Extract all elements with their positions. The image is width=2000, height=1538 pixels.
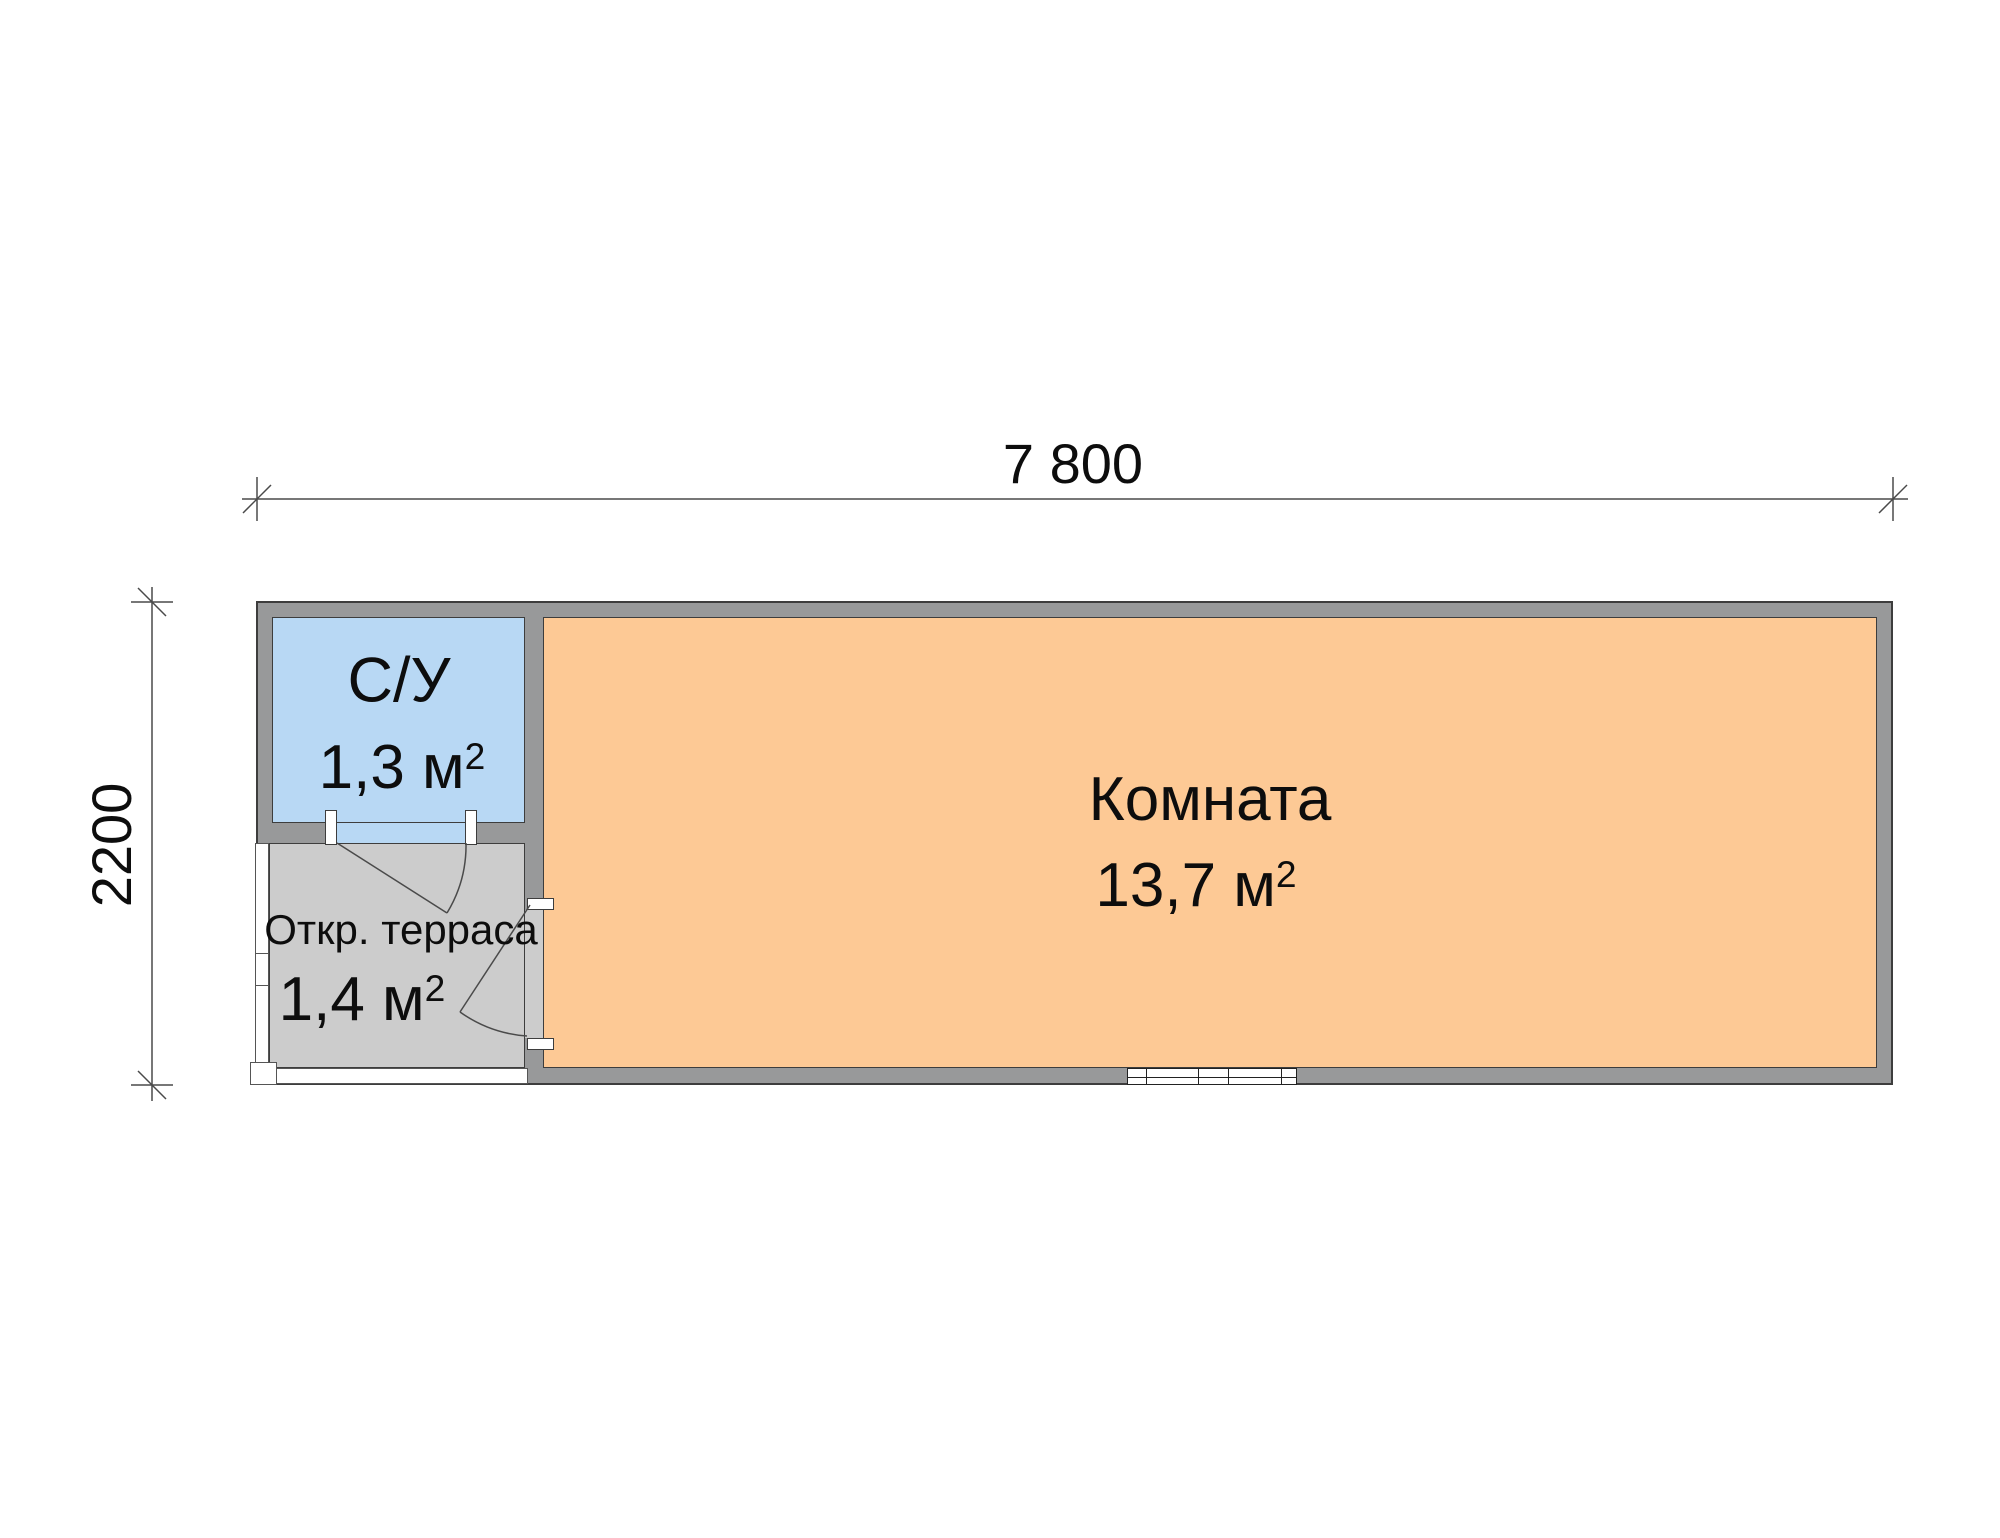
width-dimension-label: 7 800 [1003, 436, 1143, 492]
room-living-floor [543, 617, 1877, 1068]
dimension-slash-tick [138, 1071, 166, 1099]
terrace-area-superscript: 2 [425, 967, 446, 1009]
room-terrace-floor [269, 843, 525, 1068]
dimension-slash-tick [243, 485, 271, 513]
bathroom-door-jamb-left [325, 810, 337, 845]
terrace-area-value: 1,4 м [279, 965, 425, 1034]
window-mullion [1228, 1069, 1229, 1084]
terrace-open-edge-bottom [252, 1068, 528, 1084]
bathroom-door-jamb-right [465, 810, 477, 845]
window-mullion [1146, 1069, 1147, 1084]
terrace-open-edge-left [255, 843, 269, 1065]
living-door-jamb-bottom [527, 1038, 554, 1050]
height-dimension-label: 2200 [84, 783, 140, 908]
railing-tick [256, 985, 268, 986]
terrace-area-label: 1,4 м2 [279, 969, 446, 1031]
window-symbol [1127, 1068, 1297, 1085]
dimension-slash-tick [1879, 485, 1907, 513]
window-mullion [1198, 1069, 1199, 1084]
dimension-slash-tick [138, 588, 166, 616]
bathroom-area-label: 1,3 м2 [319, 737, 486, 799]
bathroom-area-value: 1,3 м [319, 733, 465, 802]
window-mullion [1281, 1069, 1282, 1084]
floor-plan-canvas: 7 800 2200 С/У 1,3 м2 Комната 13,7 м2 От… [0, 0, 2000, 1538]
window-glazing-line [1128, 1077, 1296, 1078]
terrace-corner-post [250, 1062, 277, 1085]
bathroom-name-label: С/У [347, 650, 450, 713]
living-room-area-label: 13,7 м2 [1095, 855, 1296, 917]
living-room-area-value: 13,7 м [1095, 851, 1276, 920]
railing-tick [256, 953, 268, 954]
terrace-name-label: Откр. терраса [264, 909, 538, 951]
living-room-name-label: Комната [1089, 769, 1332, 831]
living-room-area-superscript: 2 [1276, 853, 1297, 895]
bathroom-door-opening [337, 823, 465, 843]
bathroom-area-superscript: 2 [465, 735, 486, 777]
